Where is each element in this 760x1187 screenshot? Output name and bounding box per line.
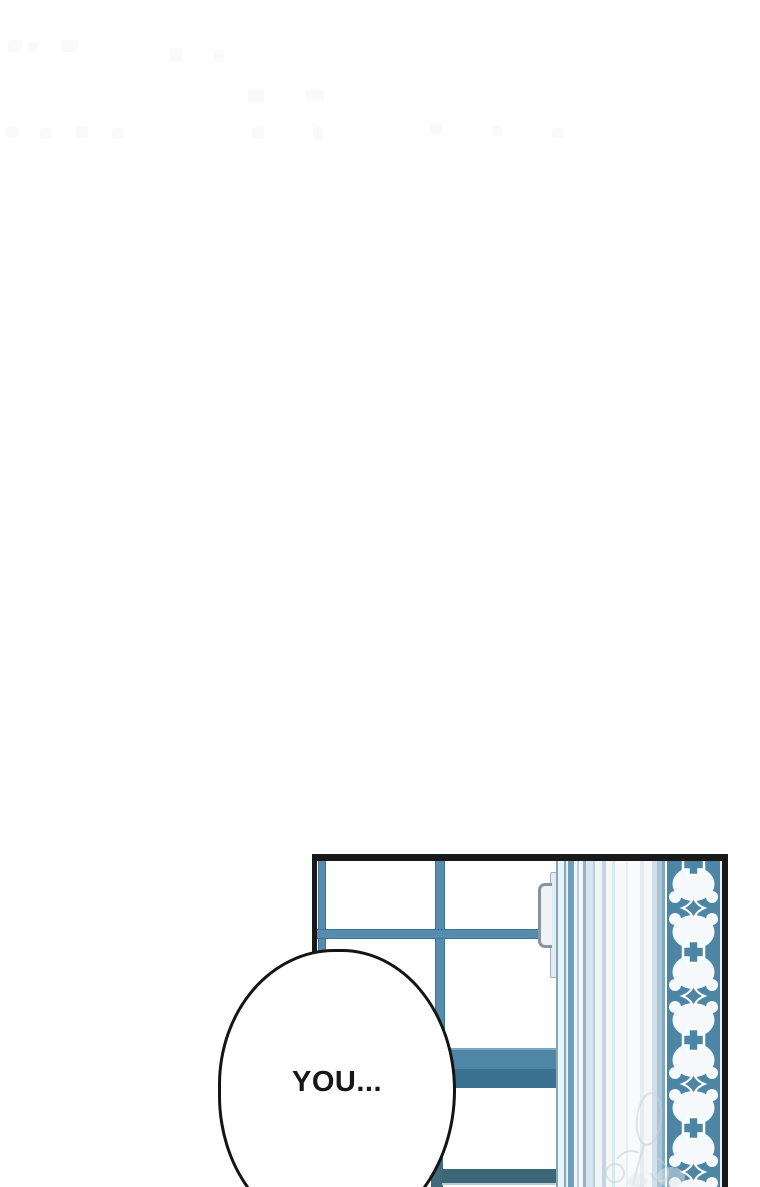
webtoon-page: YOU... [0,0,760,1187]
ghost-smudge [8,40,22,52]
window-handle-icon [538,883,552,948]
ghost-smudge [552,128,564,138]
faint-sketch-watermark [587,1089,697,1187]
ghost-smudge [248,89,264,103]
ghost-smudge [492,126,502,136]
ghost-smudge [252,127,264,139]
window-bottom-rail [442,1169,558,1185]
window-sash-stile [556,861,566,1187]
ghost-smudge [62,40,78,52]
ghost-smudge [430,123,442,135]
ghost-smudge [112,128,124,139]
ghost-smudge [40,128,52,139]
window-frame-horizontal [317,929,550,939]
ghost-smudge [313,127,323,140]
ghost-smudge [170,48,182,62]
ghost-smudge [76,126,88,138]
ghost-smudge [28,42,38,52]
ghost-smudge [6,126,18,138]
ghost-smudge [306,89,324,101]
speech-bubble-text: YOU... [221,1066,453,1099]
ghost-smudge [214,50,224,62]
